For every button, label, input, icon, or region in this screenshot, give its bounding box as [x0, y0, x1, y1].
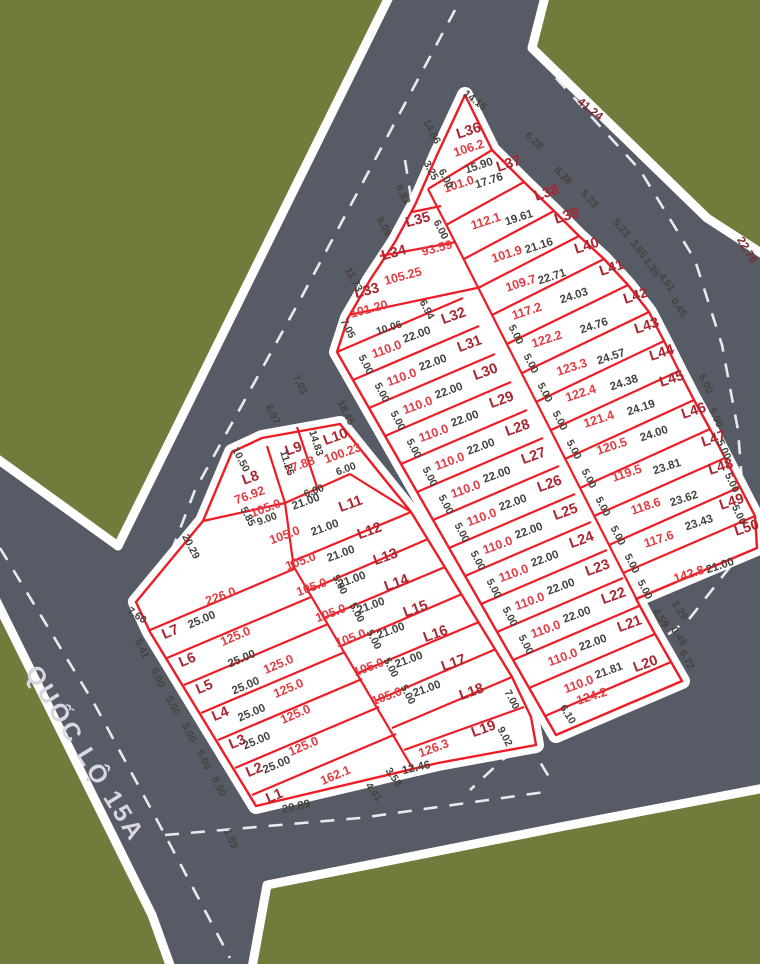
map-canvas: L1162.120.89L225.00L3125.025.00L4125.025…: [0, 0, 760, 964]
cadastral-map: L1162.120.89L225.00L3125.025.00L4125.025…: [0, 0, 760, 964]
